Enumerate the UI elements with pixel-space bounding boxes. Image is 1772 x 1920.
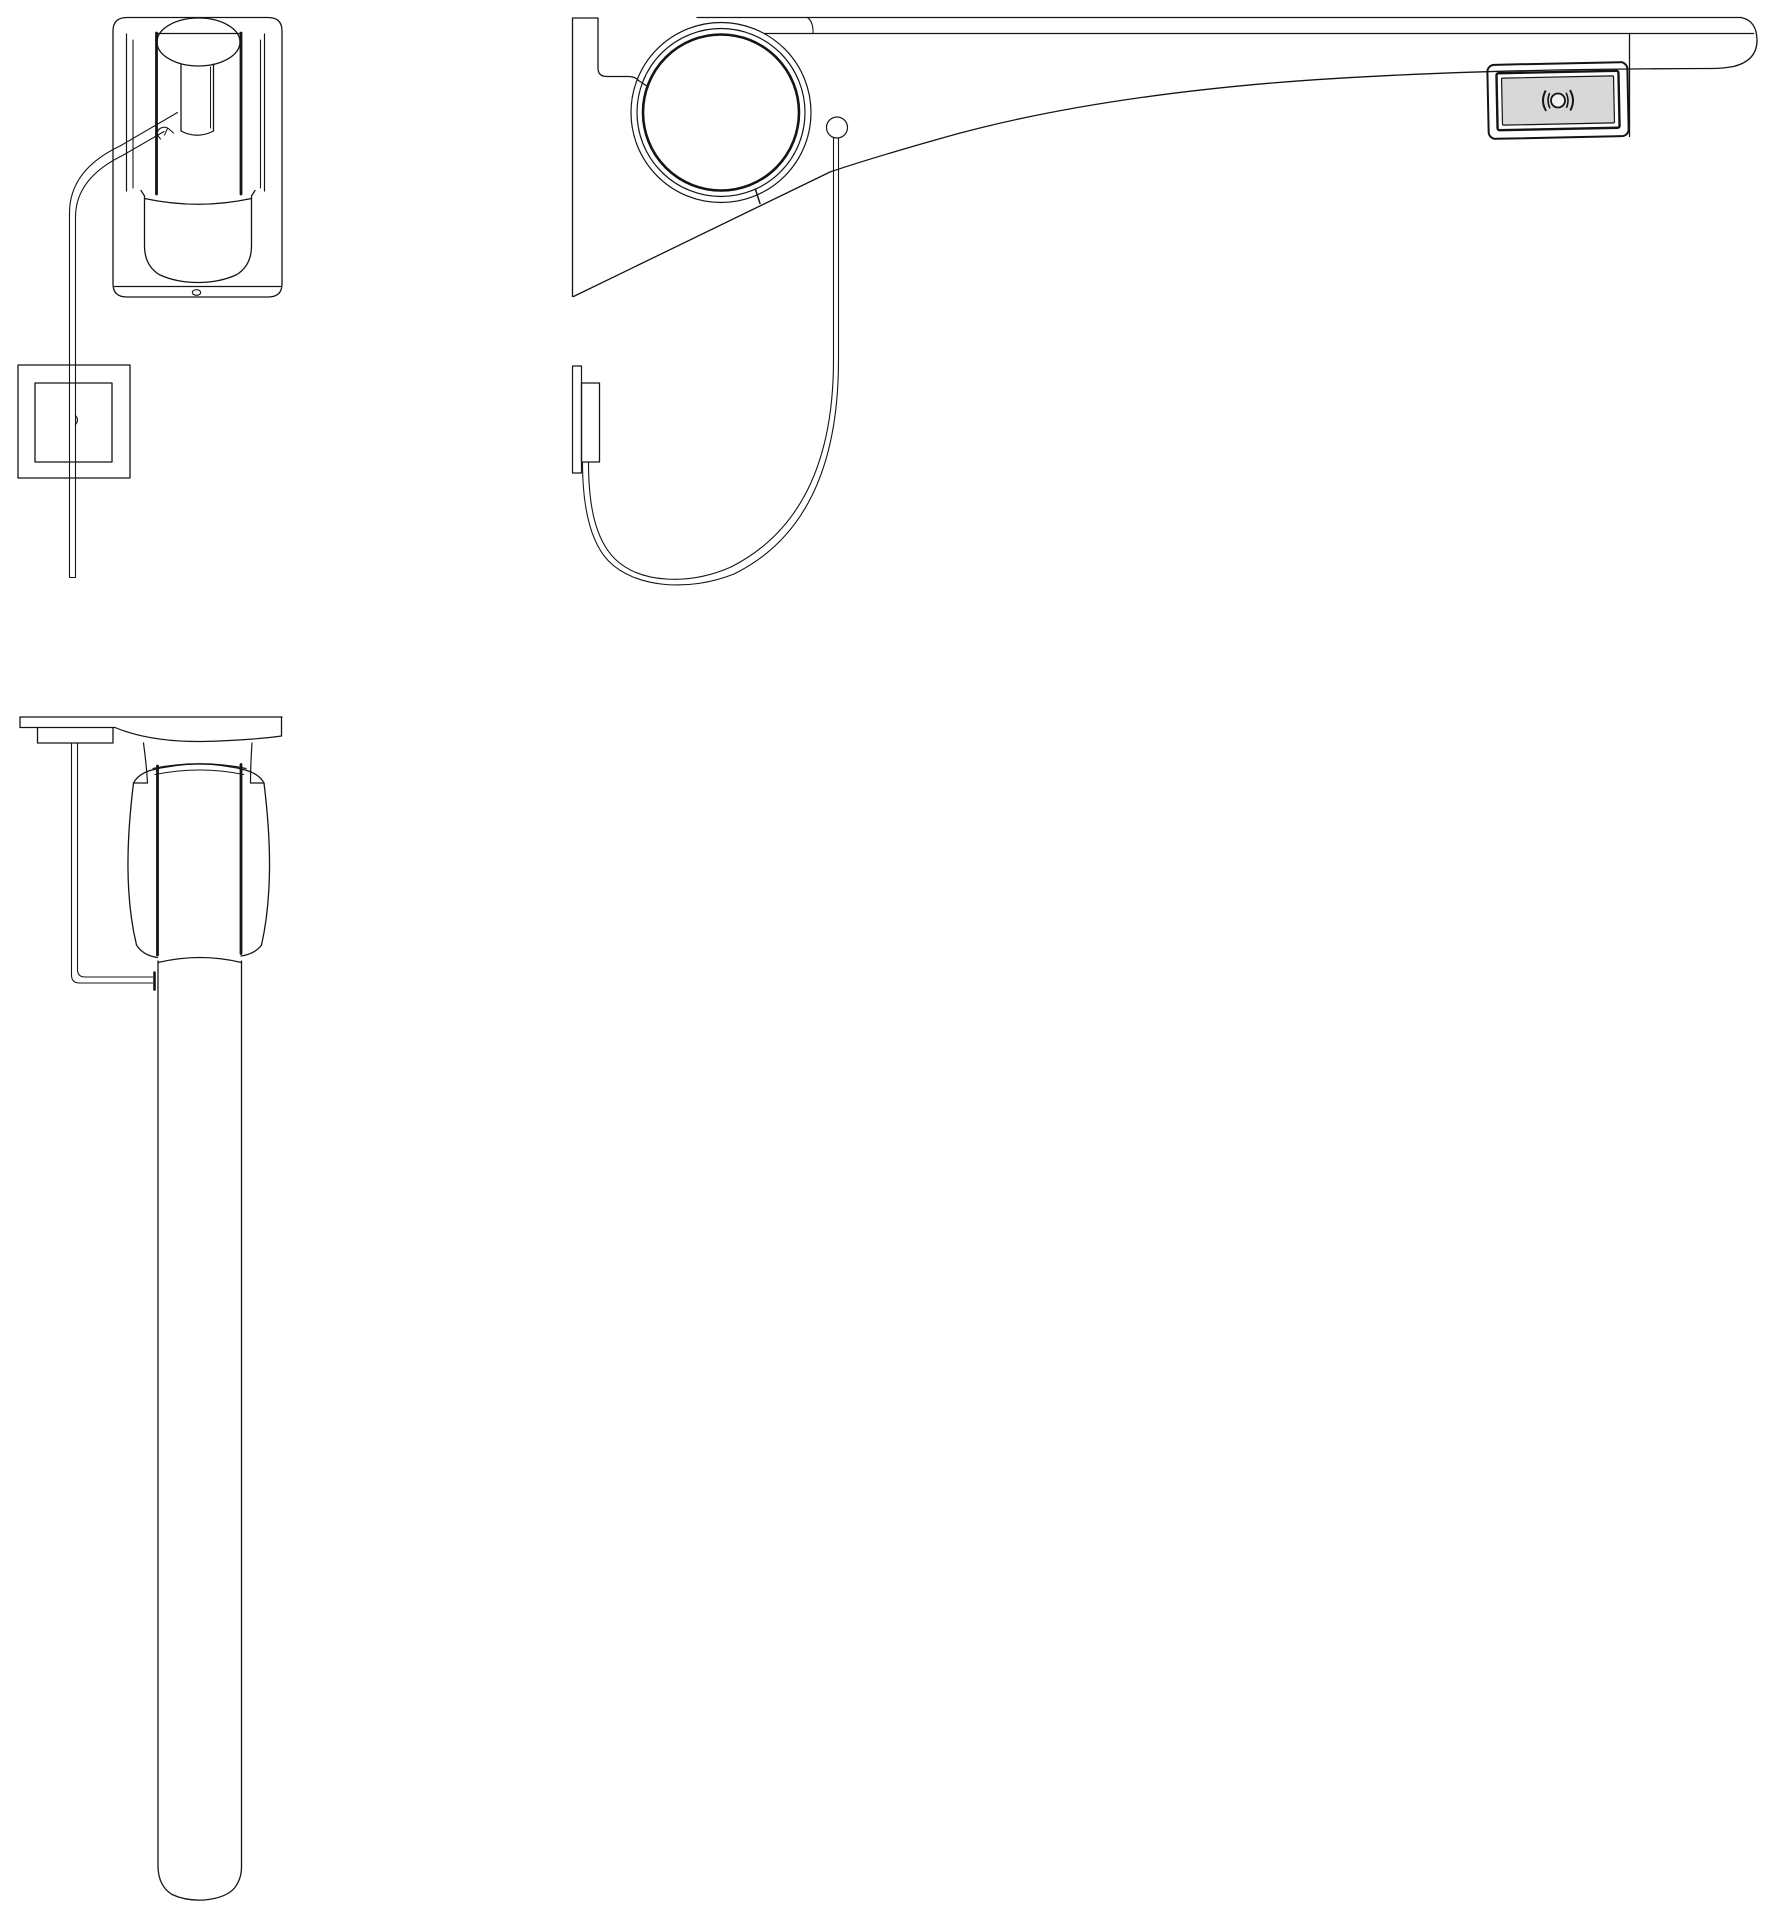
- wall-box-body: [582, 383, 600, 462]
- cord-loop-line-a: [589, 138, 834, 579]
- pivot-circle-outer: [631, 23, 811, 203]
- trigger-rod-line-a: [72, 743, 153, 983]
- knob-shoulder-arc-2: [155, 770, 244, 775]
- neck-right: [251, 743, 253, 783]
- pull-cord-line-a: [70, 113, 178, 578]
- wall-box-backplate: [573, 366, 582, 473]
- cord-loop-line-b: [583, 138, 839, 585]
- cord-attachment-ring: [827, 117, 848, 138]
- pull-cord-line-b: [76, 132, 165, 578]
- tube-bottom-cap: [158, 1867, 242, 1900]
- view-side-arm-horizontal: [573, 18, 1758, 585]
- knob-top-outline: [134, 764, 265, 783]
- top-plate-left-edge: [20, 717, 115, 728]
- neck-left: [144, 743, 148, 783]
- pivot-circle-inner-bold: [643, 35, 799, 191]
- pivot-dome: [157, 18, 240, 66]
- view-front-arm-folded: [18, 18, 282, 578]
- top-plate-underside-arc: [115, 728, 282, 742]
- trigger-rod-line-b: [78, 743, 153, 977]
- knob-right-side: [262, 783, 270, 945]
- knob-left-side: [128, 783, 137, 945]
- housing-bottom-oval: [192, 290, 200, 296]
- knob-bottom-left: [137, 945, 158, 958]
- top-plate-subblock: [38, 728, 114, 744]
- knob-bottom-right: [241, 945, 262, 956]
- housing-outline: [113, 18, 282, 298]
- view-front-arm-lowered: [20, 717, 282, 1900]
- center-tube-bottom: [181, 131, 214, 135]
- pivot-seam-tick: [756, 190, 761, 204]
- wall-plate-inner: [35, 383, 112, 462]
- wall-bracket-profile: [573, 18, 647, 297]
- arm-cup-top-arc: [145, 199, 252, 205]
- technical-drawing-canvas: [0, 0, 1772, 1920]
- rail-shoulder-tick: [808, 18, 814, 34]
- cord-hook-tick: [165, 129, 168, 136]
- wireless-symbol-circle: [1551, 93, 1565, 107]
- pivot-circle-mid: [637, 29, 805, 197]
- rail-end-cap: [1712, 18, 1758, 69]
- tube-shoulder-arc: [158, 958, 242, 963]
- drawing-page: [0, 0, 1772, 1920]
